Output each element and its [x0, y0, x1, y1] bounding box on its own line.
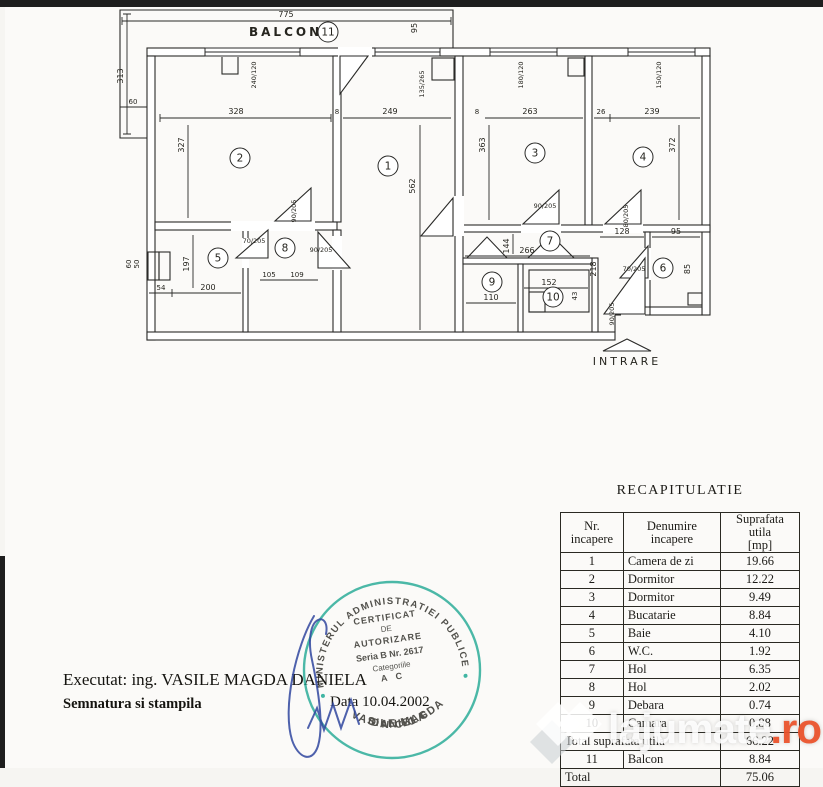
table-row: 5Baie4.10	[561, 625, 800, 643]
dim-label: 85	[683, 264, 692, 274]
room-number: 10	[546, 292, 559, 304]
watermark: lajumate.ro	[528, 694, 821, 764]
dim-label: 197	[182, 256, 191, 271]
window-size-label: 150/120	[655, 61, 663, 88]
door-size-label: 70/205	[623, 265, 646, 273]
room-number: 8	[282, 243, 289, 255]
window-size-label: 240/120	[250, 61, 258, 88]
door-size-label: 90/205	[608, 303, 616, 326]
door-size-label: 80/205	[622, 205, 630, 228]
table-header-row: Nr.incapere Denumireincapere Suprafata u…	[561, 513, 800, 553]
dim-label: 372	[668, 137, 677, 152]
entrance-label: INTRARE	[593, 355, 662, 368]
dim-label: 313	[116, 68, 125, 83]
room-number: 2	[237, 153, 244, 165]
col-header-nr: Nr.	[565, 520, 619, 533]
dim-label: 327	[177, 137, 186, 152]
table-row: 7Hol6.35	[561, 661, 800, 679]
col-header-denumire: Denumire	[628, 520, 716, 533]
room-number: 5	[215, 253, 222, 265]
dim-label: 218	[589, 261, 598, 276]
door-size-label: 70/205	[243, 237, 266, 245]
room-number: 4	[640, 152, 647, 164]
balcony-label: BALCON	[249, 25, 322, 39]
room-numbers: 1 2 3 4 5 6 7 8 9 10 11	[208, 22, 673, 307]
watermark-logo-icon	[528, 694, 606, 764]
watermark-tld: .ro	[770, 705, 821, 752]
dim-label: 43	[571, 292, 579, 301]
window-size-label: 180/120	[517, 61, 525, 88]
room-number: 6	[660, 263, 667, 275]
dim-label: 249	[382, 107, 397, 116]
door-size-label: 90/205	[310, 246, 333, 254]
table-title: RECAPITULATIE	[560, 483, 800, 499]
room-number: 9	[489, 277, 496, 289]
dim-label: 60	[125, 260, 133, 269]
dim-label: 95	[671, 227, 681, 236]
dim-label: 263	[522, 107, 537, 116]
watermark-text: lajumate.ro	[608, 705, 821, 753]
dim-label: 144	[502, 238, 511, 253]
room-number: 1	[385, 161, 392, 173]
dim-label: 239	[644, 107, 659, 116]
dim-label: 95	[410, 23, 419, 33]
table-row: 4Bucatarie8.84	[561, 607, 800, 625]
dim-label: 60	[129, 98, 138, 106]
table-total-row: Total75.06	[561, 769, 800, 787]
dim-label: 109	[290, 271, 303, 279]
dim-label: 8	[475, 108, 479, 116]
col-header-suprafata: Suprafata utila	[725, 513, 795, 539]
dim-label: 54	[157, 284, 166, 292]
dim-label: 152	[541, 278, 556, 287]
signature	[268, 598, 398, 770]
dim-label: 775	[278, 10, 293, 19]
floor-plan: BALCON 775 95 313 60 328 8 249 327 562 8…	[0, 0, 823, 478]
dim-label: 26	[597, 108, 606, 116]
dim-label: 8	[335, 108, 339, 116]
room-number: 3	[532, 148, 539, 160]
table-row: 1Camera de zi19.66	[561, 553, 800, 571]
dim-label: 363	[478, 137, 487, 152]
room-number: 11	[321, 27, 334, 39]
dim-label: 110	[483, 293, 498, 302]
dim-label: 50	[133, 260, 141, 269]
table-row: 2Dormitor12.22	[561, 571, 800, 589]
door-size-label: 90/205	[534, 202, 557, 210]
semnatura-line: Semnatura si stampila	[63, 696, 202, 713]
dim-label: 562	[408, 178, 417, 193]
table-row: 6W.C.1.92	[561, 643, 800, 661]
door-size-label: 90/205	[290, 200, 298, 223]
dim-label: 266	[519, 246, 534, 255]
window-size-label: 135/265	[418, 70, 426, 97]
dim-label: 200	[200, 283, 215, 292]
room-number: 7	[547, 236, 554, 248]
dim-label: 328	[228, 107, 243, 116]
dim-label: 105	[262, 271, 275, 279]
table-row: 3Dormitor9.49	[561, 589, 800, 607]
